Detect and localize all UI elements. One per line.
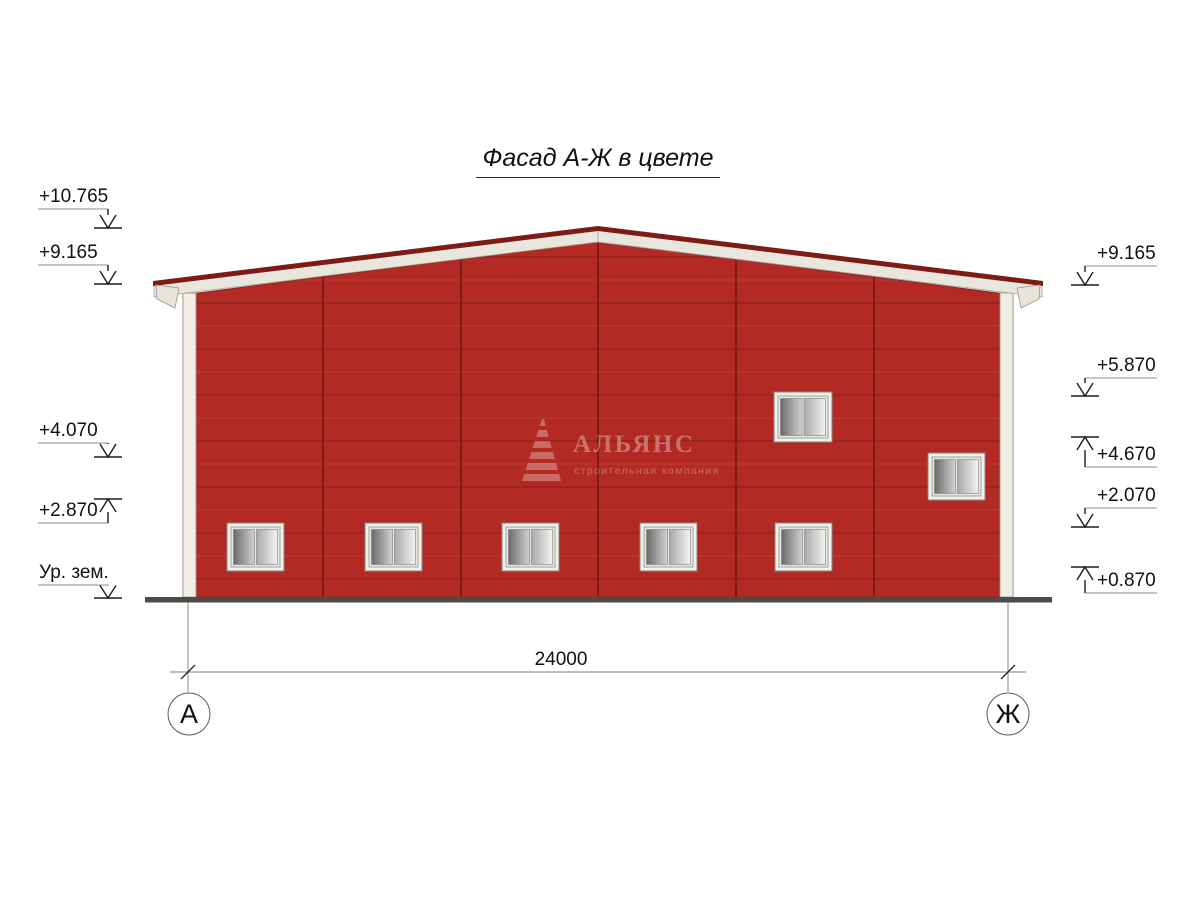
elevation-label: +5.870 xyxy=(1097,355,1177,377)
dimension-extension-lines xyxy=(188,602,1008,692)
window xyxy=(502,523,559,571)
elevation-label: Ур. зем. xyxy=(39,562,111,584)
window xyxy=(928,453,985,500)
elevation-arrows-right xyxy=(1071,266,1099,593)
elevation-label: +9.165 xyxy=(1097,243,1177,265)
elevation-label: +0.870 xyxy=(1097,570,1177,592)
elevation-label: +10.765 xyxy=(39,186,111,208)
axis-label-zh: Ж xyxy=(986,699,1030,730)
dimension-value: 24000 xyxy=(498,649,624,671)
window xyxy=(640,523,697,571)
elevation-label: +4.670 xyxy=(1097,444,1177,466)
building-facade xyxy=(145,226,1052,603)
gutter-endcap-right xyxy=(1017,285,1040,308)
window xyxy=(227,523,284,571)
watermark-company-subtitle: строительная компания xyxy=(574,465,720,477)
gutter-endcap-left xyxy=(156,285,179,308)
facade-drawing-page: Фасад А-Ж в цвете +10.765 +9.165 +4.070 … xyxy=(0,0,1200,900)
watermark-company-name: АЛЬЯНС xyxy=(573,431,695,459)
corner-trim-right xyxy=(1000,293,1013,597)
elevation-label: +4.070 xyxy=(39,420,111,442)
elevation-label: +2.870 xyxy=(39,500,111,522)
window xyxy=(775,523,832,571)
elevation-label: +2.070 xyxy=(1097,485,1177,507)
elevation-arrows-left xyxy=(94,209,122,598)
corner-trim-left xyxy=(183,293,196,597)
window xyxy=(365,523,422,571)
window xyxy=(774,392,832,442)
drawing-title: Фасад А-Ж в цвете xyxy=(476,144,720,178)
elevation-label: +9.165 xyxy=(39,242,111,264)
axis-label-a: А xyxy=(167,699,211,730)
ground-line xyxy=(145,597,1052,603)
